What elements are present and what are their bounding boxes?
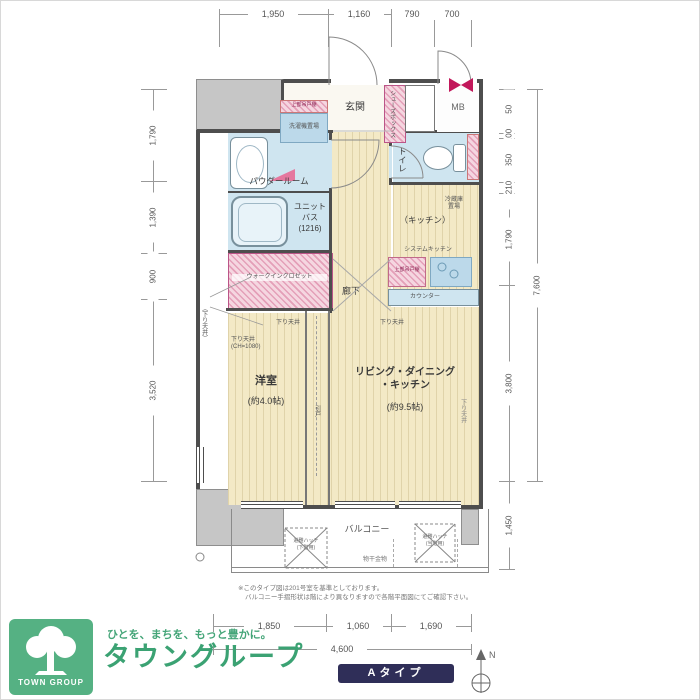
fridge-label-2: 置場: [439, 204, 469, 211]
note-line-1: ※このタイプ図は201号室を基準としております。: [238, 585, 490, 592]
drain-symbol: [196, 553, 204, 561]
ldk-label-1: リビング・ダイニング: [347, 367, 463, 378]
ldk-label-2: ・キッチン: [347, 380, 463, 391]
dim-right-4: 210: [504, 166, 515, 210]
dim-left-3: 900: [148, 252, 159, 302]
toilet-bowl: [423, 146, 453, 170]
door-opening: [389, 146, 392, 178]
hatch-this-sub: (当階用): [416, 542, 454, 548]
fridge-label-1: 冷蔵庫: [439, 197, 469, 204]
balcony-window-door: [335, 501, 395, 509]
lowered-ceiling-label: 下り天井: [231, 337, 271, 344]
sliding-partition: [305, 311, 307, 505]
shoes-box-label: シューズボックス: [388, 89, 395, 139]
dim-tick: [328, 9, 329, 47]
kitchen-label: （キッチン）: [395, 216, 455, 225]
hallway-label: 廊下: [338, 287, 364, 297]
dim-tick: [391, 614, 392, 632]
stove-unit: [430, 257, 472, 287]
type-badge: Aタイプ: [338, 664, 454, 683]
system-kitchen-label: システムキッチン: [397, 247, 459, 254]
lowered-ceiling-side-label: （下り天井）: [200, 289, 207, 357]
lowered-ceiling-height: (CH=1080): [231, 344, 283, 351]
dim-top-3: 790: [392, 9, 432, 20]
dim-bottom-3: 1,690: [406, 621, 456, 632]
balcony-label: バルコニー: [335, 525, 399, 535]
dim-balcony-depth: 1,450: [504, 504, 515, 548]
dim-tick: [499, 481, 515, 482]
unit-bath-label-1: ユニット: [290, 203, 330, 212]
common-area-top-left: [196, 79, 284, 132]
dim-top-4: 700: [432, 9, 472, 20]
dim-tick: [471, 614, 472, 632]
wall: [228, 191, 331, 193]
toilet-tank: [453, 144, 466, 172]
western-room-size-label: (約4.0帖): [234, 397, 298, 407]
dim-tick: [527, 481, 543, 482]
unit-bath-label-3: (1216): [288, 225, 332, 234]
hatch-lower-label: 避難ハッチ: [286, 539, 326, 545]
note-line-2: バルコニー手摺形状は階により異なりますので各階平面図にてご確認下さい。: [245, 594, 493, 601]
window: [241, 501, 303, 509]
lowered-ceiling-label: 下り天井: [271, 320, 305, 327]
sliding-door-label: 引戸: [313, 399, 320, 423]
hatch-lower-sub: (下階用): [286, 546, 326, 552]
dim-tick: [471, 644, 472, 655]
dim-tick: [141, 181, 167, 182]
dim-left-2: 1,390: [148, 193, 159, 243]
window: [196, 447, 204, 483]
town-group-logo: TOWN GROUP: [9, 619, 93, 695]
dim-left-4: 3,520: [148, 366, 159, 416]
dim-right-total: 7,600: [532, 264, 543, 308]
dim-tick: [141, 481, 167, 482]
laundry-pole-label: 物干金物: [351, 557, 399, 564]
wall: [389, 182, 483, 185]
tagline: ひとを、まちを、もっと豊かに。: [107, 629, 347, 641]
lowered-ceiling-label: 下り天井: [375, 320, 409, 327]
balcony-rail-line: [231, 567, 489, 568]
entrance-label: 玄関: [333, 102, 377, 113]
washer-space-label: 洗濯機置場: [281, 124, 327, 131]
toilet-upper-cabinet: [467, 134, 479, 180]
dim-right-5: 1,790: [504, 218, 515, 262]
upper-cabinet-label: 上部吊戸棚: [281, 103, 327, 109]
dim-tick: [219, 9, 220, 47]
entry-door-opening: [331, 77, 389, 85]
kitchen-upper-cabinet-label: 上部吊戸棚: [389, 268, 425, 274]
dim-tick: [499, 285, 515, 286]
balcony-divider-dash: [457, 539, 459, 567]
logo-text: TOWN GROUP: [9, 679, 93, 688]
bathtub-inner: [238, 203, 282, 242]
door-opening: [329, 140, 332, 188]
walkin-closet: [228, 253, 333, 310]
unit-bath-label-2: バス: [290, 214, 330, 223]
ldk-size-label: (約9.5帖): [347, 403, 463, 413]
sliding-partition: [328, 311, 330, 505]
sliding-door-track: [316, 316, 318, 476]
dim-right-6: 3,800: [504, 362, 515, 406]
dim-tick: [527, 89, 543, 90]
dim-top-1: 1,950: [248, 9, 298, 20]
floorplan-canvas: 1,950 1,160 790 700 1,790 1,390 900 3,52…: [0, 0, 700, 700]
dim-top-2: 1,160: [334, 9, 384, 20]
counter-label: カウンター: [395, 294, 455, 301]
hatch-this-label: 避難ハッチ: [416, 535, 454, 541]
meter-box-label: MB: [441, 103, 475, 113]
dim-tick: [499, 569, 515, 570]
north-arrow: N: [459, 645, 503, 699]
wall: [226, 308, 333, 311]
entrance-closet: [405, 85, 435, 132]
window: [399, 501, 461, 509]
powder-room-label: パウダールーム: [234, 177, 324, 186]
walkin-closet-label: ウォークインクロゼット: [232, 274, 327, 281]
hallway-floor: [331, 132, 391, 311]
wall: [228, 250, 331, 253]
dim-tick: [141, 89, 167, 90]
tree-icon: [9, 621, 93, 681]
dim-left-1: 1,790: [148, 111, 159, 161]
toilet-label: トイレ: [397, 141, 406, 179]
type-badge-label: Aタイプ: [338, 664, 454, 683]
north-label: N: [489, 650, 496, 660]
western-room-label: 洋室: [236, 375, 296, 387]
